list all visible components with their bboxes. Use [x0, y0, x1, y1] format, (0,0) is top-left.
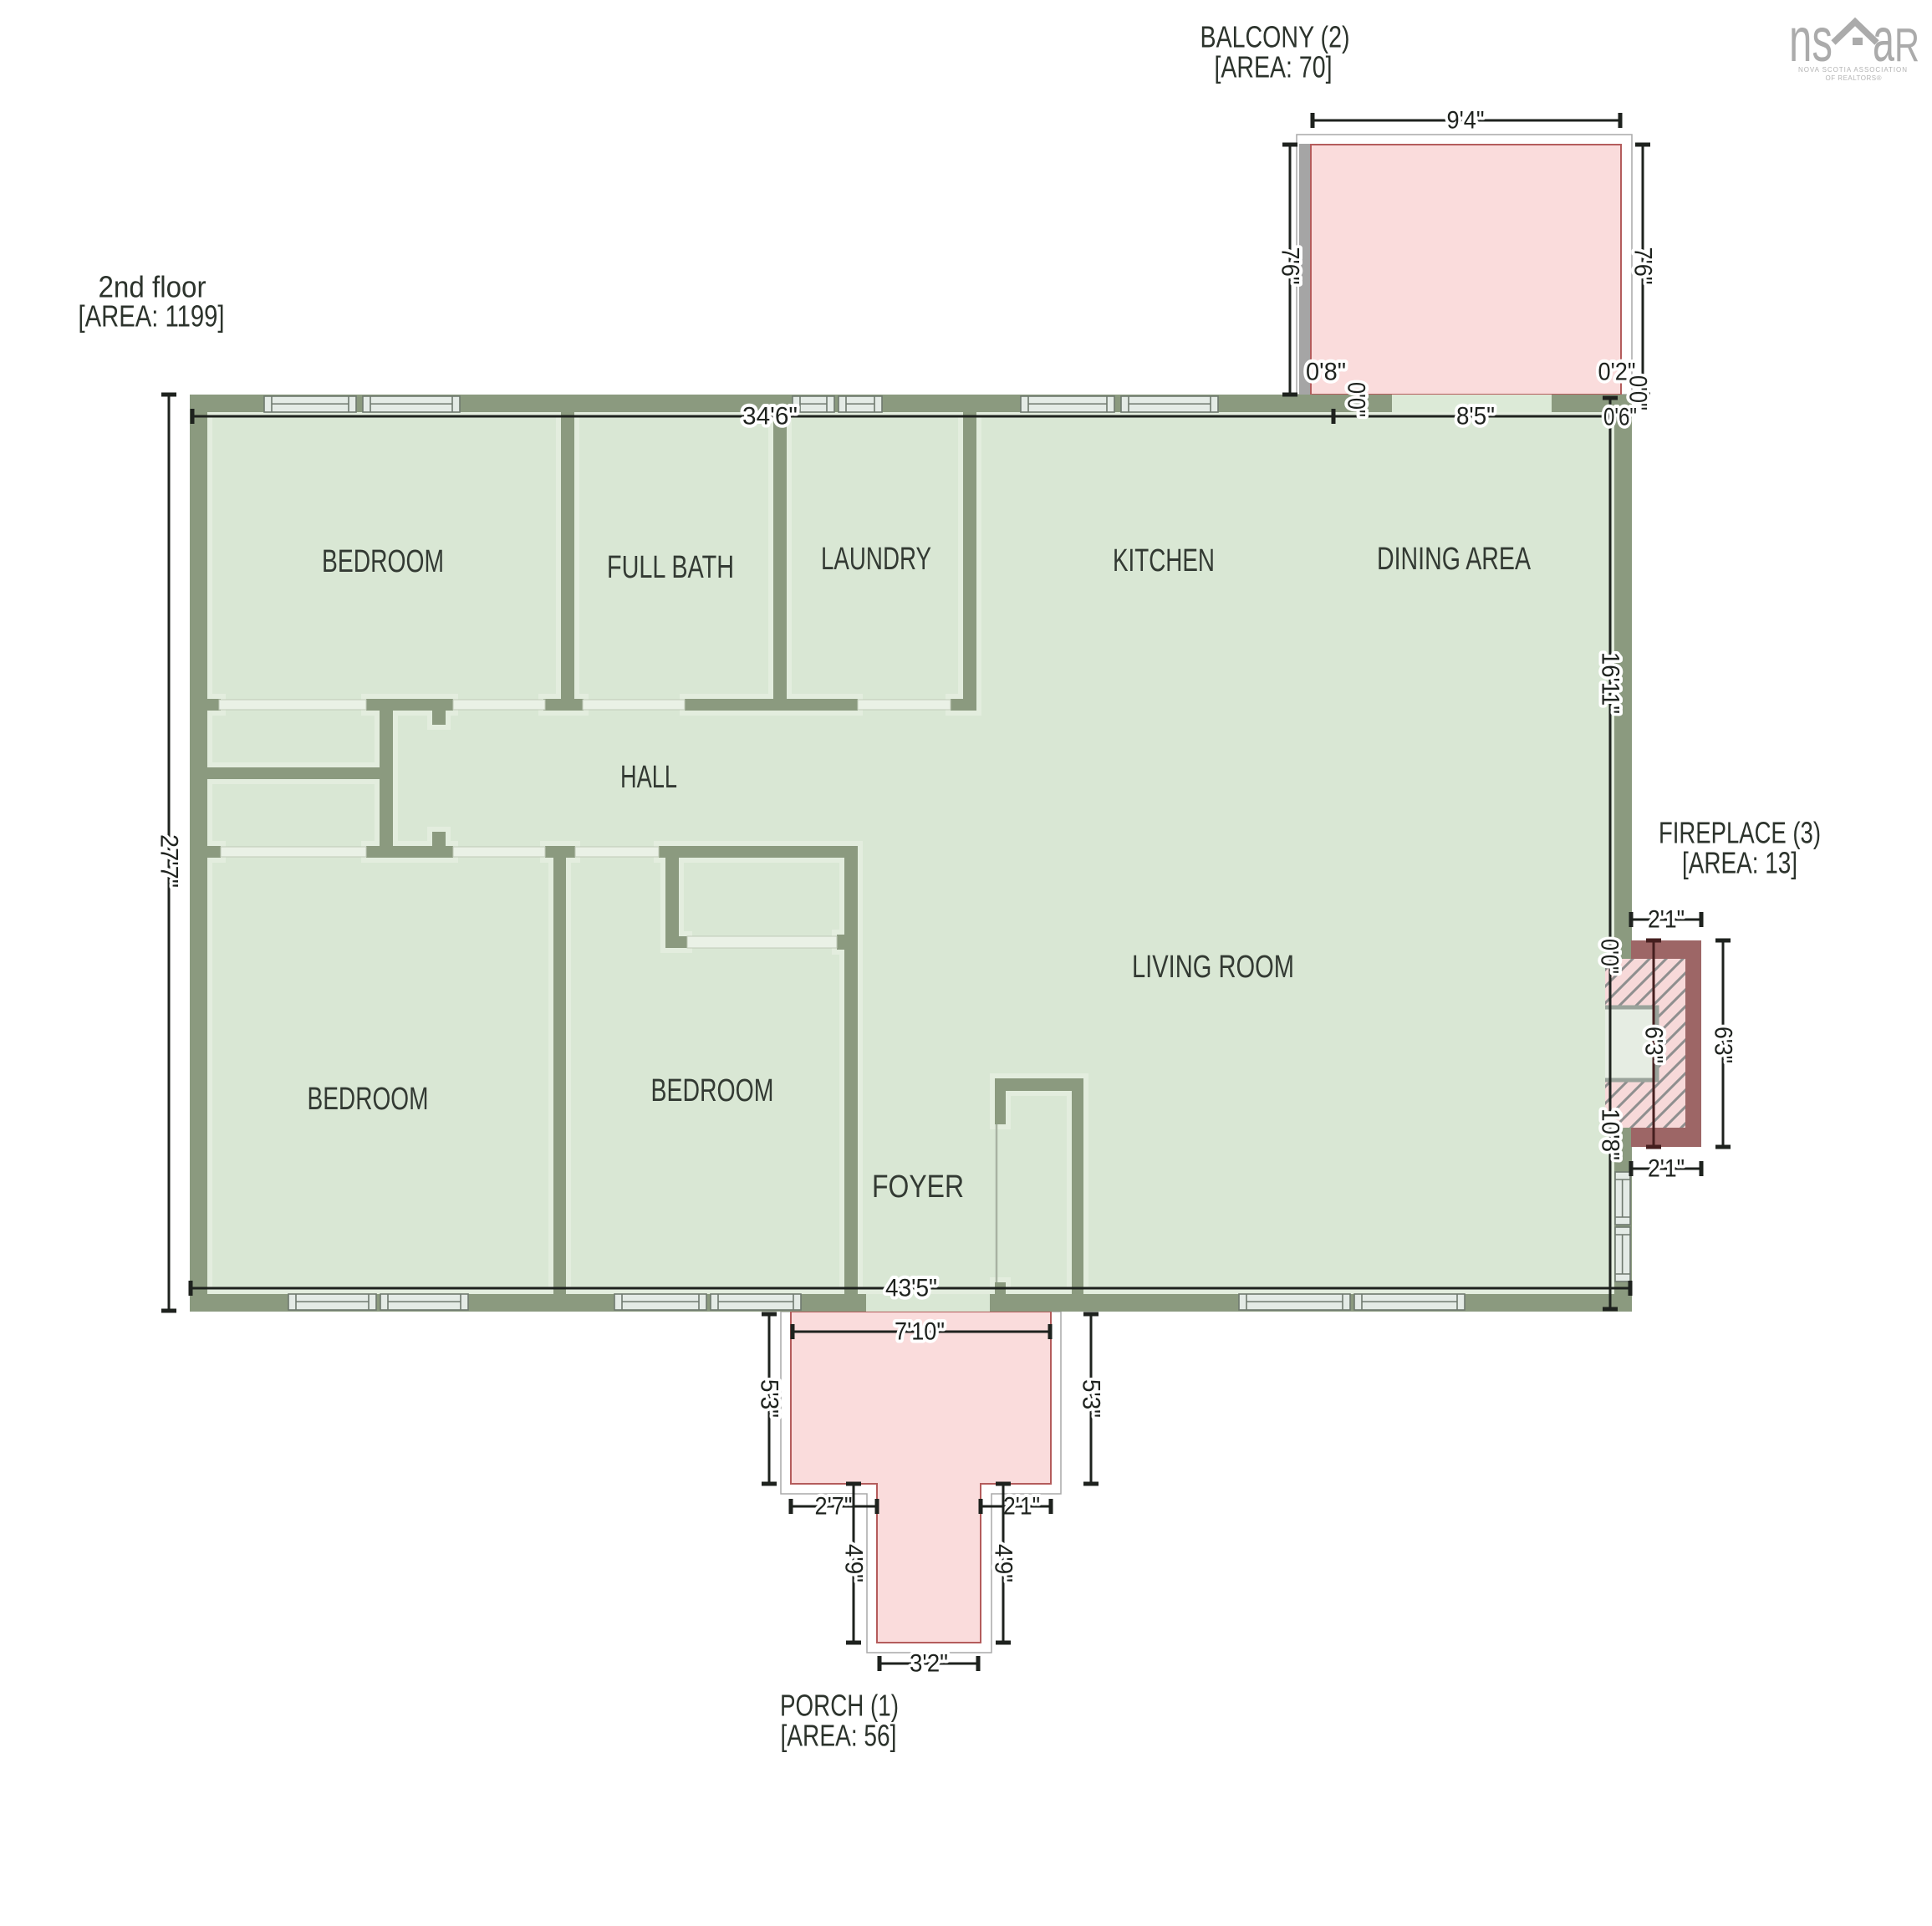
svg-text:PORCH (1): PORCH (1) [780, 1689, 899, 1723]
svg-text:[AREA: 70]: [AREA: 70] [1215, 50, 1333, 84]
svg-text:10'8": 10'8" [1597, 1108, 1624, 1160]
svg-text:2'1": 2'1" [1648, 1155, 1685, 1183]
svg-text:2'1": 2'1" [1003, 1493, 1040, 1521]
svg-text:9'4": 9'4" [1447, 107, 1485, 135]
svg-text:BEDROOM: BEDROOM [322, 544, 444, 579]
svg-text:4'9": 4'9" [990, 1544, 1017, 1582]
svg-text:BEDROOM: BEDROOM [651, 1073, 774, 1108]
svg-text:8'5": 8'5" [1456, 403, 1495, 431]
svg-text:2'7": 2'7" [815, 1493, 853, 1521]
svg-text:LIVING ROOM: LIVING ROOM [1132, 950, 1294, 985]
svg-text:NOVA SCOTIA ASSOCIATION: NOVA SCOTIA ASSOCIATION [1798, 66, 1907, 74]
svg-text:ns: ns [1789, 5, 1833, 74]
svg-text:KITCHEN: KITCHEN [1113, 543, 1215, 578]
svg-text:LAUNDRY: LAUNDRY [821, 542, 931, 577]
svg-text:FULL BATH: FULL BATH [607, 550, 734, 585]
svg-text:16'11": 16'11" [1597, 652, 1624, 714]
svg-text:FOYER: FOYER [872, 1169, 964, 1205]
svg-text:OF REALTORS®: OF REALTORS® [1826, 74, 1882, 82]
svg-text:43'5": 43'5" [885, 1275, 937, 1302]
svg-text:0'6": 0'6" [1603, 404, 1637, 431]
svg-text:27'7": 27'7" [155, 834, 183, 888]
svg-text:HALL: HALL [620, 760, 677, 795]
svg-text:4'9": 4'9" [840, 1544, 868, 1582]
svg-text:BEDROOM: BEDROOM [308, 1082, 429, 1117]
svg-text:0'8": 0'8" [1306, 359, 1346, 386]
svg-text:[AREA: 13]: [AREA: 13] [1682, 846, 1797, 880]
svg-text:6'3": 6'3" [1710, 1027, 1737, 1063]
svg-text:34'6": 34'6" [742, 403, 798, 431]
svg-text:0'0": 0'0" [1596, 939, 1624, 974]
svg-text:FIREPLACE (3): FIREPLACE (3) [1659, 816, 1821, 850]
svg-text:7'6": 7'6" [1277, 247, 1304, 285]
svg-text:R: R [1894, 18, 1919, 72]
svg-text:2'1": 2'1" [1648, 906, 1685, 934]
svg-text:[AREA: 56]: [AREA: 56] [781, 1719, 897, 1753]
svg-text:BALCONY (2): BALCONY (2) [1200, 20, 1350, 54]
svg-text:7'10": 7'10" [895, 1318, 945, 1346]
svg-text:5'3": 5'3" [756, 1379, 783, 1418]
svg-text:7'6": 7'6" [1629, 247, 1657, 285]
svg-text:DINING AREA: DINING AREA [1377, 542, 1531, 577]
svg-text:5'3": 5'3" [1078, 1379, 1105, 1418]
svg-text:[AREA: 1199]: [AREA: 1199] [79, 299, 225, 334]
svg-text:6'3": 6'3" [1640, 1027, 1668, 1063]
svg-text:0'0": 0'0" [1343, 382, 1370, 417]
svg-text:3'2": 3'2" [910, 1650, 948, 1678]
